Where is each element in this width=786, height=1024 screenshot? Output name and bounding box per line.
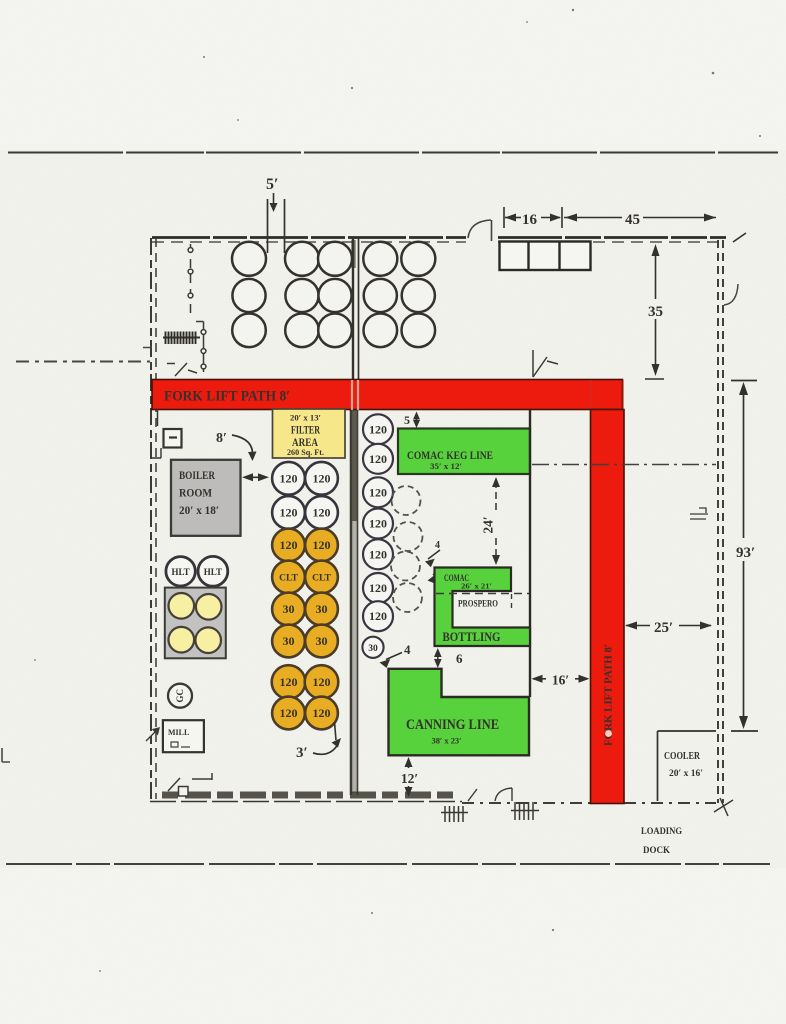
svg-text:26′ x 21′: 26′ x 21′ [461,582,492,591]
svg-text:CLT: CLT [312,574,331,584]
svg-text:16′: 16′ [552,673,569,688]
svg-text:4: 4 [435,540,440,551]
svg-text:FORK LIFT PATH 8′: FORK LIFT PATH 8′ [164,389,290,405]
svg-text:120: 120 [313,538,331,552]
svg-text:120: 120 [369,485,387,499]
svg-text:24′: 24′ [481,516,496,533]
svg-text:120: 120 [280,706,298,720]
svg-text:35′ x 12′: 35′ x 12′ [430,461,462,471]
svg-text:120: 120 [280,506,298,520]
svg-text:120: 120 [280,471,298,485]
svg-text:120: 120 [313,471,331,485]
svg-text:MILL: MILL [168,728,189,737]
svg-text:45: 45 [625,212,640,228]
svg-text:CANNING LINE: CANNING LINE [406,717,499,733]
svg-text:260 Sq. Ft.: 260 Sq. Ft. [287,448,324,457]
svg-text:120: 120 [313,706,331,720]
svg-text:120: 120 [313,675,331,689]
svg-text:LOADING: LOADING [641,827,683,837]
svg-text:5: 5 [404,413,410,427]
svg-text:25′: 25′ [654,620,673,636]
svg-text:30: 30 [316,602,328,616]
svg-text:16: 16 [522,212,538,228]
svg-text:COMAC KEG LINE: COMAC KEG LINE [407,448,493,462]
svg-text:20′ x 16′: 20′ x 16′ [669,768,703,778]
svg-text:FILTER: FILTER [291,425,320,437]
svg-text:4: 4 [404,642,411,657]
svg-text:93′: 93′ [736,545,755,561]
svg-text:8′: 8′ [216,431,227,446]
svg-text:12′: 12′ [401,771,418,786]
svg-text:38′ x 23′: 38′ x 23′ [432,736,462,746]
svg-text:120: 120 [369,517,387,531]
svg-text:120: 120 [280,675,298,689]
svg-text:PROSPERO: PROSPERO [458,600,498,610]
svg-text:120: 120 [280,538,298,552]
svg-text:20′ x 18′: 20′ x 18′ [179,503,219,517]
svg-text:30: 30 [316,634,328,648]
svg-text:CLT: CLT [279,574,298,584]
svg-text:BOILER: BOILER [179,468,215,482]
svg-text:5′: 5′ [266,176,279,193]
svg-text:HLT: HLT [204,567,222,577]
svg-text:30: 30 [283,634,295,648]
svg-text:35: 35 [648,304,663,320]
svg-text:120: 120 [369,609,387,623]
svg-text:GC: GC [175,689,185,703]
svg-text:DOCK: DOCK [643,846,671,856]
svg-text:3′: 3′ [296,745,308,761]
svg-text:BOTTLING: BOTTLING [443,630,501,644]
svg-text:30: 30 [283,602,295,616]
svg-text:120: 120 [369,581,387,595]
svg-text:120: 120 [313,506,331,520]
svg-text:30: 30 [368,644,378,654]
svg-text:HLT: HLT [172,567,190,577]
svg-text:120: 120 [369,547,387,561]
svg-text:20′ x 13′: 20′ x 13′ [290,413,321,423]
svg-text:ROOM: ROOM [179,486,212,500]
svg-text:6: 6 [456,651,463,666]
svg-text:COOLER: COOLER [664,751,701,762]
svg-text:120: 120 [369,422,387,436]
svg-text:120: 120 [369,452,387,466]
